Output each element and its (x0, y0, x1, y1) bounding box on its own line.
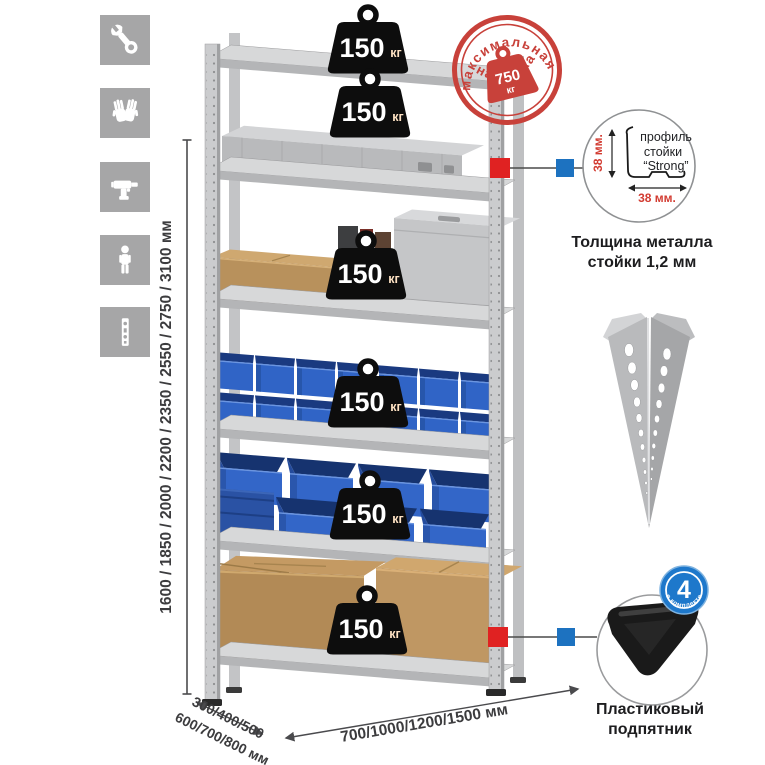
corner-post-image (603, 313, 695, 528)
height-dimension: 1600 / 1850 / 2000 / 2200 / 2350 / 2550 … (158, 140, 192, 694)
load-value: 150 (339, 33, 384, 63)
load-value: 150 (337, 259, 382, 289)
profile-label-2: стойки (644, 145, 682, 159)
wrench-icon (100, 15, 150, 65)
foot-detail-circle: 4 в комплекте (597, 566, 708, 705)
product-infographic: 150 кг 150 кг 150 кг 150 кг 150 кг 150 к… (0, 0, 765, 765)
foot-back-right (510, 677, 526, 683)
profile-caption: Толщина металла стойки 1,2 мм (550, 233, 734, 274)
gloves-icon (100, 88, 150, 138)
kit-count-value: 4 (677, 576, 691, 604)
load-unit: кг (392, 512, 403, 526)
load-value: 150 (338, 614, 383, 644)
load-badge-1: 150 кг (328, 7, 408, 74)
foot-caption-line1: Пластиковый (596, 701, 704, 718)
foot-callout-connector (488, 627, 597, 647)
foot-front-right (486, 689, 506, 696)
load-value: 150 (341, 97, 386, 127)
foot-back-left (226, 687, 242, 693)
front-left-post (205, 44, 220, 700)
load-unit: кг (392, 110, 403, 124)
perforated-post-icon (100, 307, 150, 357)
profile-label-1: профиль (640, 130, 692, 144)
load-value: 150 (341, 499, 386, 529)
profile-dim-horizontal: 38 мм. (638, 191, 676, 205)
foot-caption-line2: подпятник (608, 721, 692, 738)
load-unit: кг (389, 627, 400, 641)
load-unit: кг (390, 400, 401, 414)
blue-marker-bottom (557, 628, 575, 646)
width-dimension: 700/1000/1200/1500 мм (286, 689, 578, 746)
blue-marker-top (556, 159, 574, 177)
person-icon (100, 235, 150, 285)
load-unit: кг (388, 272, 399, 286)
profile-label-3: “Strong” (643, 159, 688, 173)
profile-dim-vertical: 38 мм. (591, 134, 605, 172)
load-value: 150 (339, 387, 384, 417)
profile-callout-connector (490, 158, 586, 178)
width-label: 700/1000/1200/1500 мм (339, 701, 509, 746)
red-marker-top (490, 158, 510, 178)
red-marker-bottom (488, 627, 508, 647)
profile-caption-line2: стойки 1,2 мм (588, 254, 697, 271)
profile-caption-line1: Толщина металла (571, 234, 712, 251)
max-load-stamp: максимальная нагрузка 750 кг (443, 6, 570, 133)
depth-dimension: 300/400/500 600/700/800 мм (173, 693, 272, 765)
kit-count-badge: 4 в комплекте (660, 566, 708, 614)
height-label: 1600 / 1850 / 2000 / 2200 / 2350 / 2550 … (158, 220, 175, 614)
drill-icon (100, 162, 150, 212)
foot-caption: Пластиковый подпятник (558, 700, 742, 741)
load-unit: кг (390, 46, 401, 60)
back-right-post (513, 56, 524, 678)
profile-detail-circle: 38 мм. 38 мм. профиль стойки “Strong” (583, 110, 695, 222)
